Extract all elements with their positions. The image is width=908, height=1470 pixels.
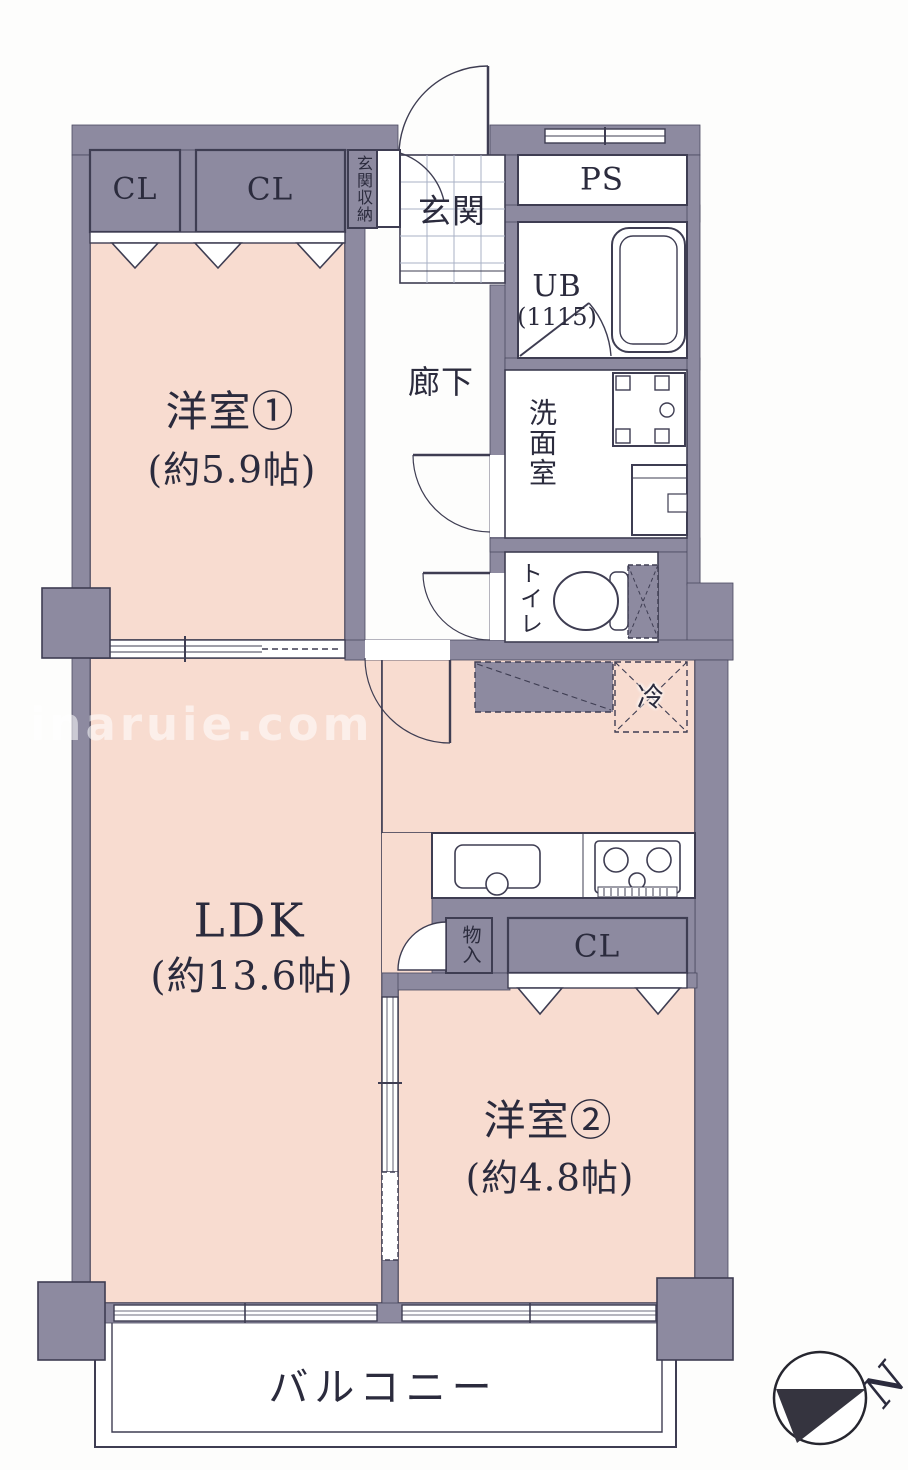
washroom-door-icon (413, 455, 490, 532)
compass-icon (774, 1352, 866, 1444)
entrance-door-icon (399, 66, 488, 155)
shoe-cabinet (377, 150, 400, 227)
ub-size-label: (1115) (517, 305, 597, 329)
washing-machine-icon (613, 373, 685, 446)
room-yoshitsu1-floor (90, 232, 345, 640)
vanity-sink-icon (632, 465, 687, 535)
ps-top-window-icon (545, 127, 665, 145)
fridge-space-label: 冷 (637, 685, 665, 712)
ps-label: PS (580, 165, 624, 196)
yoshitsu2-name-label: 洋室② (483, 1100, 612, 1142)
yoshitsu1-closets (90, 150, 345, 268)
ldk-size-label: (約13.6帖) (150, 958, 353, 997)
senmenshitsu-label: 洗面室 (527, 398, 555, 488)
toilet-door-icon (423, 573, 490, 640)
ldk-name-label: LDK (193, 898, 306, 945)
ub-label: UB (532, 272, 581, 302)
closet3-label: CL (574, 932, 620, 963)
kitchen-counter (432, 833, 695, 898)
genkan-storage-label: 玄関収納 (355, 155, 371, 223)
rouka-label: 廊下 (408, 366, 474, 398)
watermark-text: inaruie.com (30, 698, 374, 751)
yoshitsu1-ldk-slider-icon (90, 636, 345, 662)
yoshitsu2-size-label: (約4.8帖) (466, 1160, 635, 1197)
monoire-label: 物入 (461, 925, 480, 965)
yoshitsu1-name-label: 洋室① (165, 391, 294, 433)
toilet-label: トイレ (517, 562, 540, 637)
closet1-label: CL (113, 175, 158, 205)
yoshitsu1-size-label: (約5.9帖) (148, 452, 317, 489)
bathtub-icon (612, 228, 685, 352)
closet2-label: CL (247, 175, 293, 206)
genkan-label: 玄関 (418, 195, 486, 228)
kitchen-sink-icon (455, 845, 540, 895)
stove-icon (595, 841, 680, 897)
floorplan-page: CL CL 玄関収納 玄関 PS UB (1115) 廊下 洗面室 トイレ 洋室… (0, 0, 908, 1470)
wall-openings (365, 455, 508, 660)
balcony-label: バルコニー (268, 1368, 497, 1408)
kitchen-upper-cabinet-icon (475, 662, 613, 712)
